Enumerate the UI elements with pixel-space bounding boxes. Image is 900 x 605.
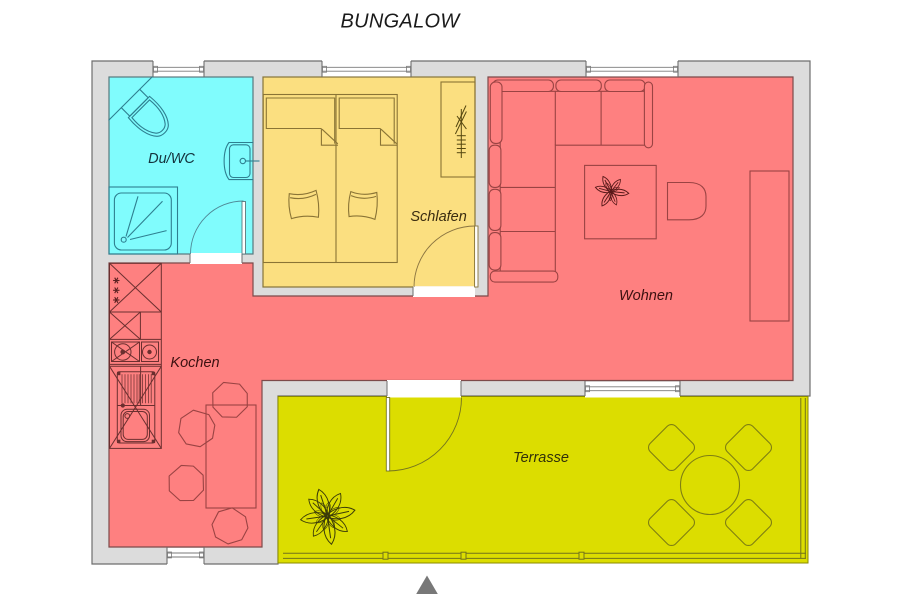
svg-text:Kochen: Kochen <box>170 355 219 371</box>
svg-text:BUNGALOW: BUNGALOW <box>340 11 461 33</box>
svg-text:Terrasse: Terrasse <box>513 450 569 466</box>
svg-text:Du/WC: Du/WC <box>148 151 195 167</box>
svg-text:Schlafen: Schlafen <box>410 209 466 225</box>
svg-text:Wohnen: Wohnen <box>619 288 673 304</box>
